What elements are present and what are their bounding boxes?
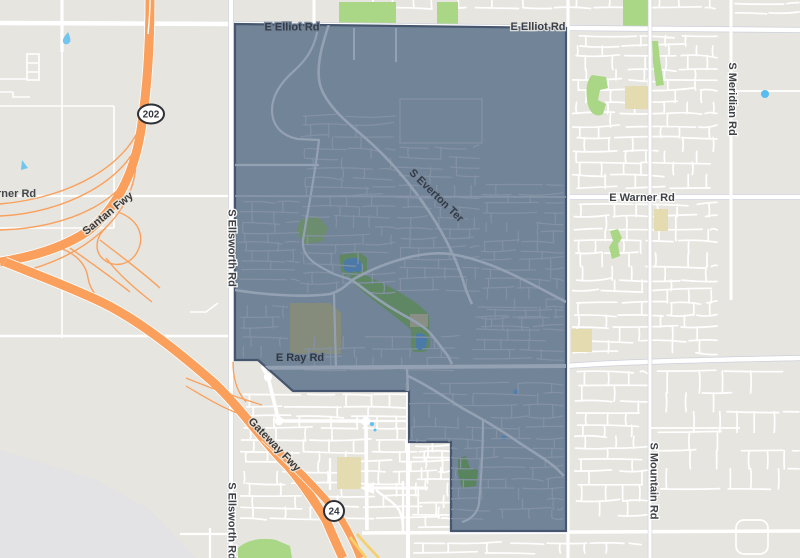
svg-text:rner Rd: rner Rd bbox=[0, 188, 36, 200]
svg-text:E Warner Rd: E Warner Rd bbox=[609, 192, 675, 204]
svg-text:E Elliot Rd: E Elliot Rd bbox=[511, 21, 566, 33]
svg-text:S Ellsworth Rd: S Ellsworth Rd bbox=[226, 209, 238, 287]
svg-text:E Elliot Rd: E Elliot Rd bbox=[265, 22, 320, 34]
svg-text:202: 202 bbox=[143, 110, 160, 121]
svg-text:S Ellsworth Rd: S Ellsworth Rd bbox=[226, 482, 238, 558]
svg-text:S Meridian Rd: S Meridian Rd bbox=[726, 62, 738, 135]
svg-text:S Mountain Rd: S Mountain Rd bbox=[648, 443, 660, 520]
svg-text:E Ray Rd: E Ray Rd bbox=[276, 352, 324, 364]
svg-text:24: 24 bbox=[328, 507, 340, 518]
